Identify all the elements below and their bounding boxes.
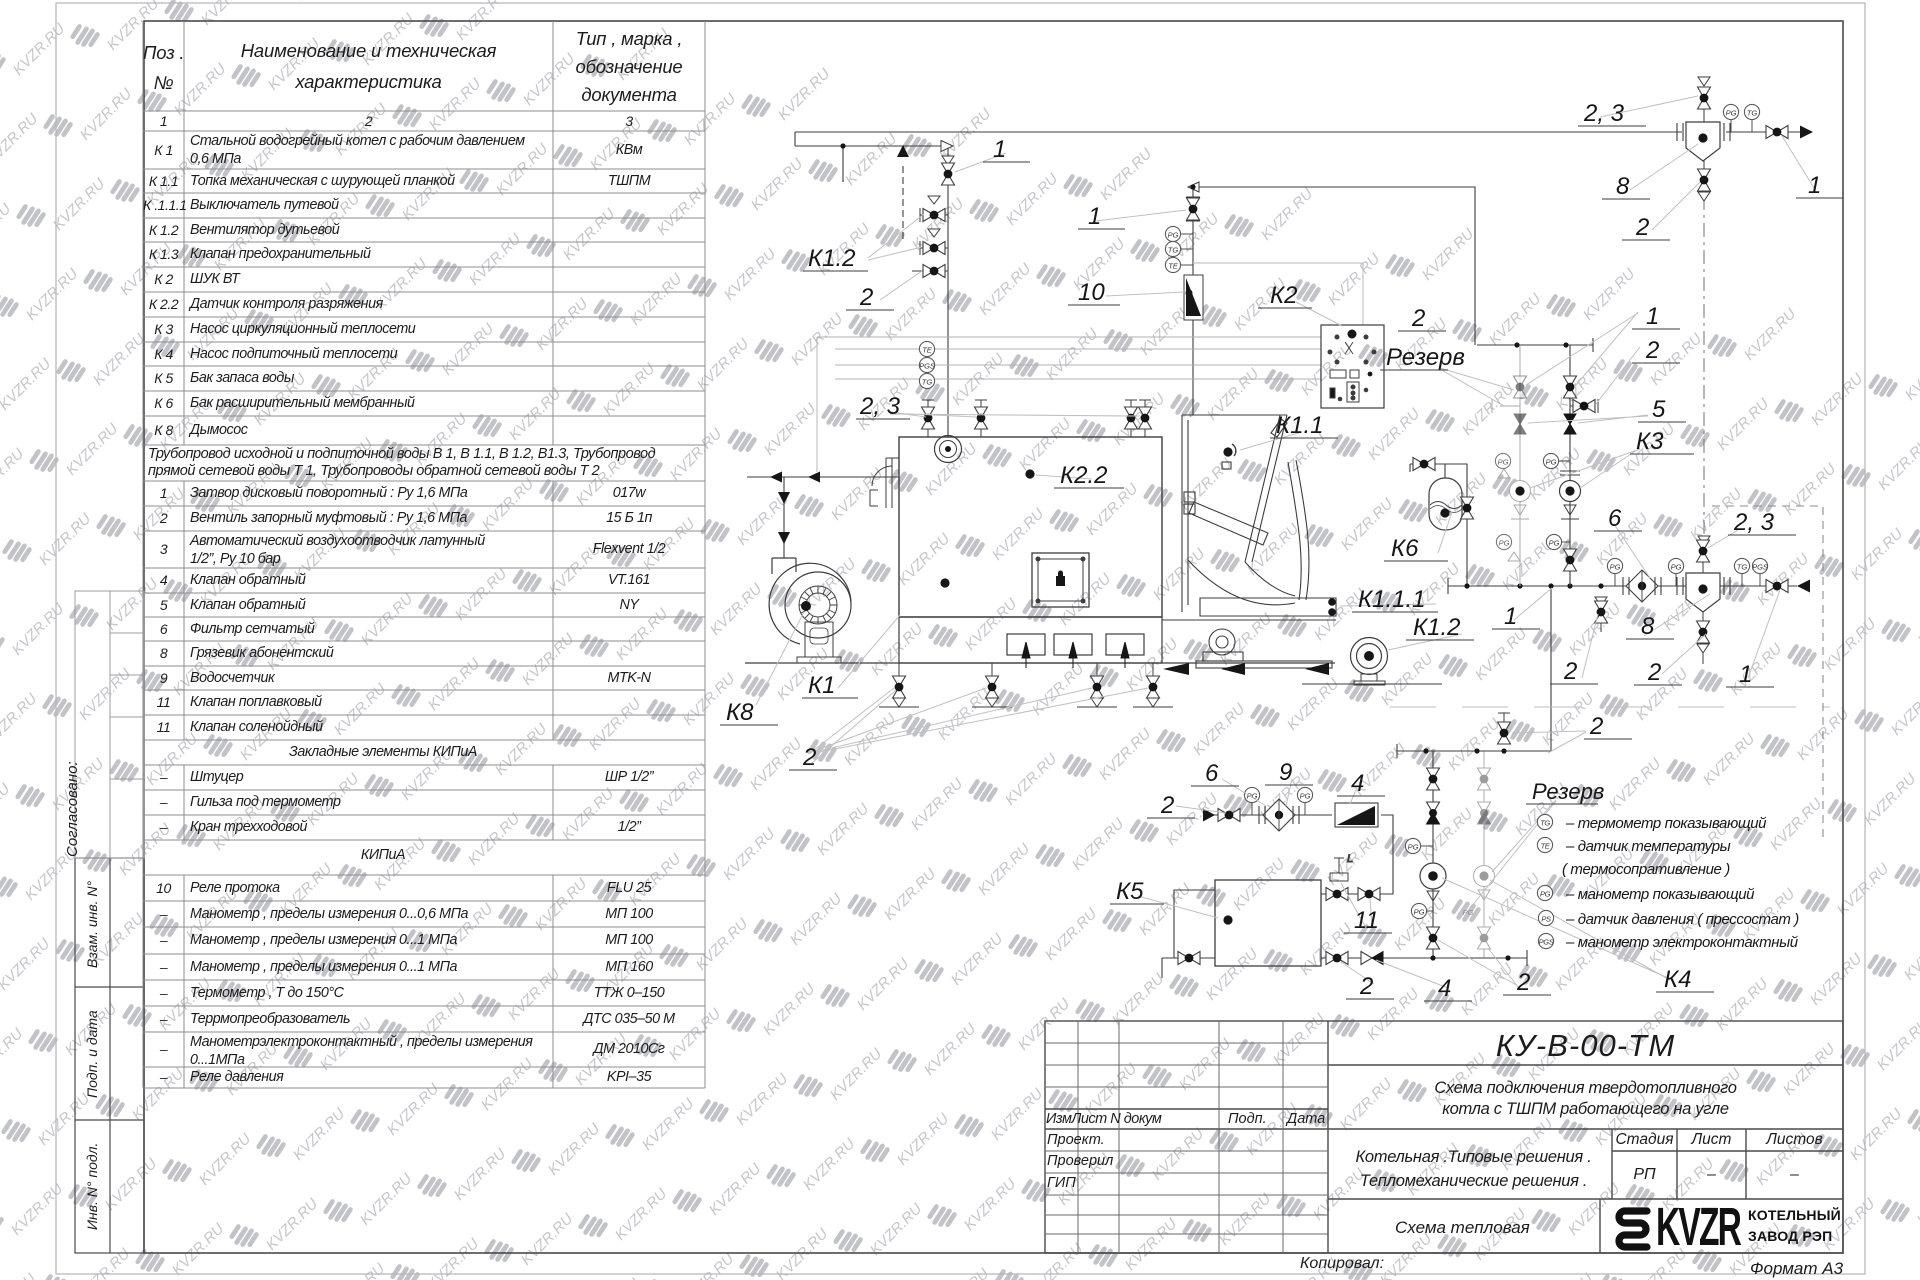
svg-text:KVZR: KVZR — [1656, 1197, 1741, 1257]
